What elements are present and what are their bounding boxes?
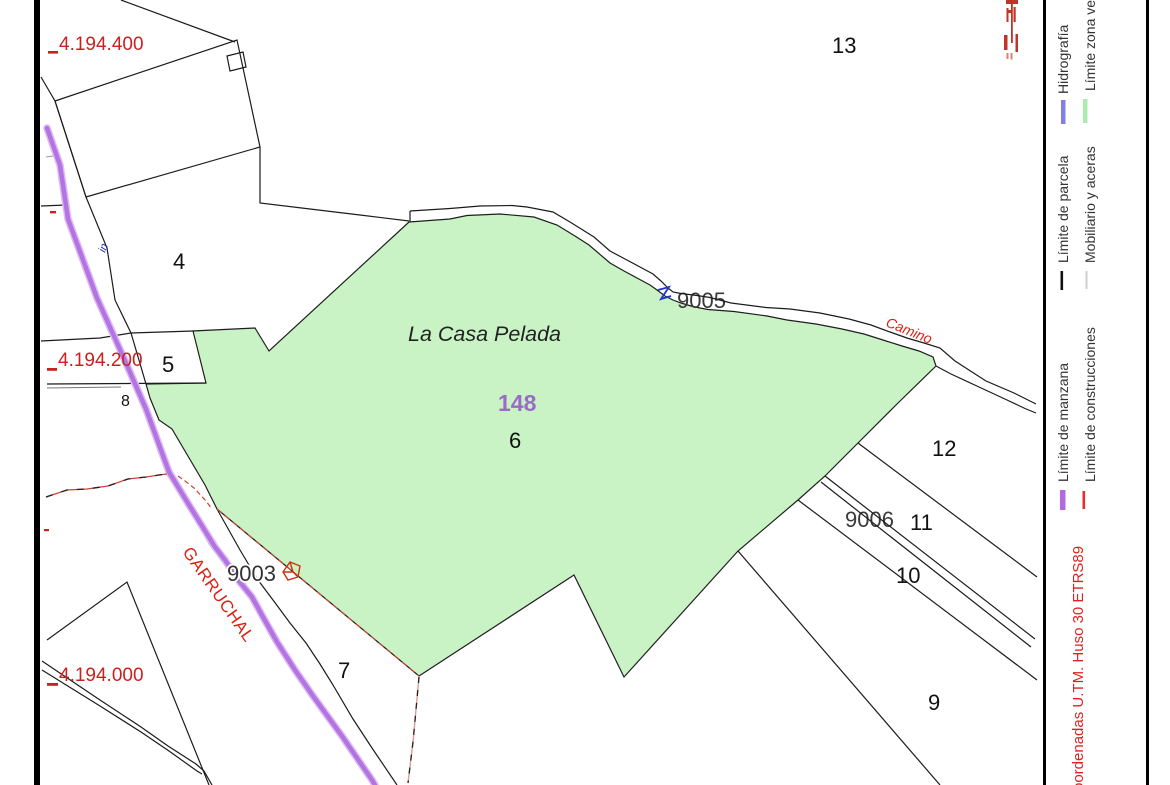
svg-text:Mobiliario y aceras: Mobiliario y aceras xyxy=(1082,146,1098,263)
svg-text:11: 11 xyxy=(910,510,933,535)
svg-text:9003: 9003 xyxy=(227,561,276,586)
svg-text:Límite de manzana: Límite de manzana xyxy=(1055,363,1071,482)
svg-text:4.194.200: 4.194.200 xyxy=(58,350,143,371)
svg-text:5: 5 xyxy=(162,352,174,377)
svg-text:Límite de parcela: Límite de parcela xyxy=(1055,155,1071,263)
svg-text:148: 148 xyxy=(498,390,537,416)
svg-text:La Casa Pelada: La Casa Pelada xyxy=(408,322,561,346)
svg-text:8: 8 xyxy=(121,393,130,410)
svg-text:Límite de construcciones: Límite de construcciones xyxy=(1082,327,1098,482)
svg-text:4.194.400: 4.194.400 xyxy=(59,34,144,55)
svg-text:13: 13 xyxy=(832,33,856,58)
svg-text:4.194.000: 4.194.000 xyxy=(59,665,144,686)
svg-text:10: 10 xyxy=(896,563,920,588)
svg-text:oordenadas U.TM. Huso 30 ETRS8: oordenadas U.TM. Huso 30 ETRS89 xyxy=(1070,546,1087,785)
svg-text:12: 12 xyxy=(932,436,956,461)
svg-text:Hidrografía: Hidrografía xyxy=(1055,25,1071,94)
svg-text:7: 7 xyxy=(338,658,350,683)
svg-text:Límite zona ver: Límite zona ver xyxy=(1082,0,1098,91)
svg-text:6: 6 xyxy=(509,428,521,453)
svg-text:9005: 9005 xyxy=(677,288,726,313)
svg-text:9: 9 xyxy=(928,690,940,715)
svg-text:4: 4 xyxy=(173,249,185,274)
